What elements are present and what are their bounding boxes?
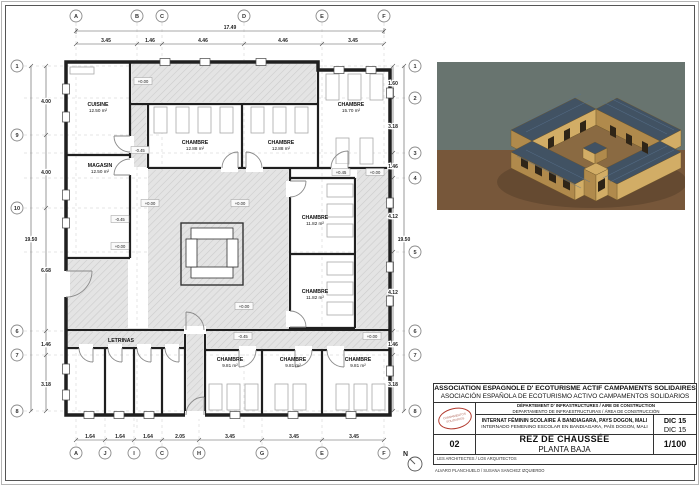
dim-total-left: 19.50 — [25, 237, 38, 243]
svg-text:4.46: 4.46 — [198, 38, 208, 44]
svg-text:6.68: 6.68 — [41, 268, 51, 274]
org-name-es: ASOCIACIÓN ESPAÑOLA DE ECOTURISMO ACTIVO… — [441, 393, 690, 401]
svg-text:7: 7 — [15, 353, 18, 359]
north-label: N — [403, 451, 408, 458]
svg-text:5: 5 — [413, 250, 416, 256]
room-area: 12.88 m² — [186, 146, 205, 151]
svg-text:4.00: 4.00 — [41, 99, 51, 105]
organization-header: ASSOCIATION ESPAGNOLE D' ECOTURISME ACTI… — [434, 384, 696, 403]
svg-text:E: E — [320, 451, 324, 457]
svg-text:1.60: 1.60 — [388, 81, 398, 87]
svg-text:3.45: 3.45 — [225, 434, 235, 440]
svg-text:1.46: 1.46 — [41, 342, 51, 348]
project-name-es: INTERNADO FEMENINO ESCOLAR EN BANDIAGARA… — [481, 425, 648, 431]
drawing-sheet: { "sheet": {"bg": "#ffffff", "frame": "#… — [0, 0, 700, 486]
svg-text:D: D — [242, 14, 246, 20]
svg-text:C: C — [160, 14, 164, 20]
department-cell: DÉPARTEMENT D' INFRASTRUCTURES / AIRE DE… — [476, 403, 696, 415]
date-es: DIC 15 — [664, 425, 686, 434]
drawing-title-fr: REZ DE CHAUSSÉE — [519, 434, 609, 445]
level-marker: +0.00 — [239, 304, 250, 309]
svg-text:1: 1 — [15, 64, 18, 70]
department-es: DEPARTAMENTO DE INFRAESTRUCTURAS / ÁREA … — [513, 409, 660, 414]
svg-text:4.46: 4.46 — [278, 38, 288, 44]
level-marker: +0.00 — [370, 170, 381, 175]
project-cell: INTERNAT FÉMININ SCOLAIRE Á BANDIAGARA, … — [476, 415, 653, 434]
room-label: LETRINAS — [108, 338, 134, 344]
svg-text:10: 10 — [14, 206, 20, 212]
level-marker: +0.00 — [235, 201, 246, 206]
svg-text:1.64: 1.64 — [115, 434, 125, 440]
svg-text:H: H — [197, 451, 201, 457]
scale-cell: 1/100 — [653, 434, 696, 454]
room-area: 9.81 m² — [222, 363, 238, 368]
title-block: ASSOCIATION ESPAGNOLE D' ECOTURISME ACTI… — [433, 383, 697, 465]
svg-text:3: 3 — [413, 151, 416, 157]
room-area: 12.50 m² — [89, 108, 108, 113]
date-fr: DIC 15 — [664, 416, 686, 425]
level-marker: -0.45 — [135, 148, 145, 153]
svg-text:C: C — [160, 451, 164, 457]
svg-text:3.45: 3.45 — [101, 38, 111, 44]
svg-text:A: A — [74, 451, 78, 457]
architects-label: LES ARCHITECTES / LOS ARQUITECTOS — [434, 454, 696, 463]
building-3d-render — [437, 62, 685, 210]
svg-text:F: F — [382, 451, 386, 457]
svg-text:4.12: 4.12 — [388, 214, 398, 220]
svg-text:3.18: 3.18 — [388, 124, 398, 130]
svg-text:1.64: 1.64 — [85, 434, 95, 440]
room-area: 9.81 m² — [285, 363, 301, 368]
level-marker: +0.00 — [367, 334, 378, 339]
north-arrow: N — [403, 451, 422, 471]
svg-text:3.18: 3.18 — [388, 382, 398, 388]
svg-text:F: F — [382, 14, 386, 20]
svg-text:3.45: 3.45 — [289, 434, 299, 440]
svg-text:9: 9 — [15, 133, 18, 139]
level-marker: +0.45 — [336, 170, 347, 175]
room-area: 12.88 m² — [272, 146, 291, 151]
svg-text:8: 8 — [413, 409, 416, 415]
logo-cell: CAMPAMENTOS SOLIDARIOS — [434, 403, 476, 434]
svg-text:G: G — [260, 451, 264, 457]
room-area: 11.82 m² — [306, 295, 324, 300]
floor-plan-drawing: CUISINE 12.50 m² MAGASIN 12.50 m² CHAMBR… — [0, 0, 432, 486]
level-marker: -0.45 — [115, 217, 125, 222]
svg-text:8: 8 — [15, 409, 18, 415]
level-marker: +0.00 — [145, 201, 156, 206]
room-area: 11.82 m² — [306, 221, 324, 226]
svg-text:B: B — [135, 14, 139, 20]
svg-text:1.46: 1.46 — [388, 342, 398, 348]
svg-text:1: 1 — [413, 64, 416, 70]
svg-text:E: E — [320, 14, 324, 20]
svg-text:1.46: 1.46 — [388, 164, 398, 170]
dim-total-right: 19.50 — [398, 237, 411, 243]
svg-text:2.05: 2.05 — [175, 434, 185, 440]
svg-text:3.45: 3.45 — [349, 434, 359, 440]
svg-text:6: 6 — [413, 329, 416, 335]
svg-text:J: J — [103, 451, 106, 457]
level-marker: -0.45 — [238, 334, 248, 339]
organization-stamp-logo: CAMPAMENTOS SOLIDARIOS — [436, 405, 474, 433]
svg-text:3.45: 3.45 — [348, 38, 358, 44]
svg-text:3.18: 3.18 — [41, 382, 51, 388]
level-marker: +0.00 — [138, 79, 149, 84]
level-marker: +0.00 — [115, 244, 126, 249]
date-cell: DIC 15 DIC 15 — [653, 415, 696, 434]
svg-text:1.64: 1.64 — [143, 434, 153, 440]
room-area: 12.50 m² — [91, 169, 110, 174]
svg-text:4.12: 4.12 — [388, 290, 398, 296]
drawing-title-cell: REZ DE CHAUSSÉE PLANTA BAJA — [476, 434, 653, 454]
svg-text:A: A — [74, 14, 78, 20]
org-name-fr: ASSOCIATION ESPAGNOLE D' ECOTURISME ACTI… — [434, 385, 696, 393]
svg-text:2: 2 — [413, 96, 416, 102]
sheet-number: 02 — [434, 434, 476, 454]
svg-text:7: 7 — [413, 353, 416, 359]
room-area: 15.70 m² — [342, 108, 361, 113]
room-area: 9.81 m² — [350, 363, 366, 368]
architects-names: ALVARO PLANCHUELO / SUSANA SANCHEZ IZQUI… — [435, 468, 545, 473]
svg-text:1.46: 1.46 — [145, 38, 155, 44]
dim-total-top: 17.49 — [224, 25, 237, 31]
svg-text:4.00: 4.00 — [41, 170, 51, 176]
svg-text:6: 6 — [15, 329, 18, 335]
